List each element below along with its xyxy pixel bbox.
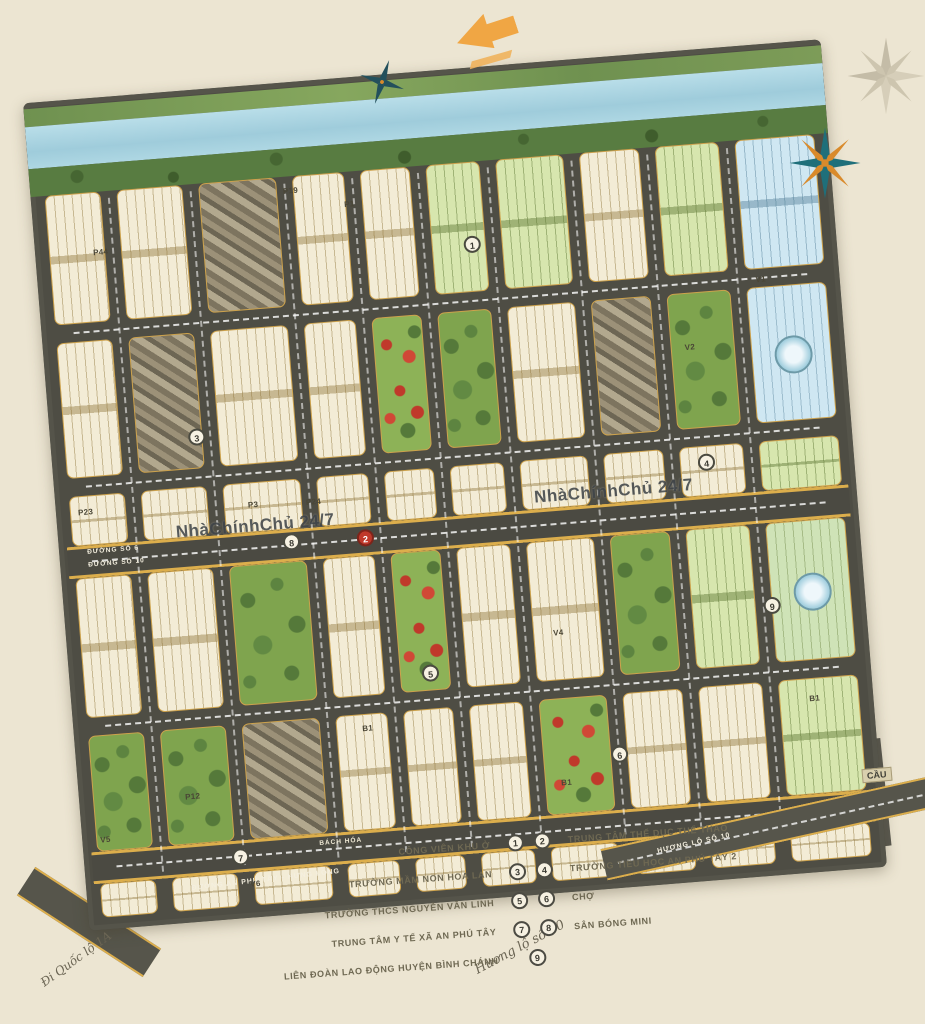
block-label: V5 xyxy=(100,835,111,845)
masterplan-map: ĐƯỜNG SỐ 6 ĐƯỜNG SỐ 10 ĐƯỜNG AN PHÚ TÂY … xyxy=(23,39,887,930)
legend-circle-4: 4 xyxy=(535,861,553,879)
legend-circle-6: 6 xyxy=(537,890,555,908)
map-block xyxy=(160,725,235,846)
map-block xyxy=(666,289,741,430)
block-label: B1 xyxy=(561,778,573,788)
block-label: V1 xyxy=(755,274,766,284)
map-block xyxy=(384,468,438,522)
legend-circle-2: 2 xyxy=(533,832,551,850)
legend-circles: 7 8 xyxy=(496,917,575,940)
block-label: P23 xyxy=(78,507,94,517)
compass-rose-icon xyxy=(788,126,862,200)
map-block xyxy=(758,435,842,491)
legend-circle-5: 5 xyxy=(511,892,529,910)
map-block xyxy=(495,154,573,289)
map-block xyxy=(229,560,318,706)
map-block xyxy=(88,732,153,852)
map-block xyxy=(579,148,649,282)
map-block xyxy=(507,302,586,443)
map-block xyxy=(610,531,681,675)
map-block xyxy=(198,177,286,313)
block-label: V4 xyxy=(553,628,564,638)
block-label: P3 xyxy=(248,500,259,510)
map-block xyxy=(698,682,771,803)
masterplan-page: { "watermark": { "text": "NhàChínhChủ 24… xyxy=(0,0,925,1024)
block-label: B1 xyxy=(809,693,821,703)
legend-circles: 1 2 xyxy=(489,830,568,853)
legend-circle-8: 8 xyxy=(540,919,558,937)
map-block xyxy=(655,142,729,277)
map-block xyxy=(622,688,691,808)
legend-circle-1: 1 xyxy=(506,834,524,852)
handwritten-quoc-lo-1a: Đi Quốc lộ 1A xyxy=(38,929,114,990)
map-block xyxy=(526,537,605,682)
map-block xyxy=(210,325,299,467)
map-block xyxy=(539,695,616,816)
block-label: P1 xyxy=(344,199,355,209)
map-block xyxy=(449,462,507,516)
legend-circle-3: 3 xyxy=(508,863,526,881)
block-label: P12 xyxy=(185,791,201,801)
block-label: P19 xyxy=(283,186,299,196)
map-block xyxy=(591,296,662,436)
map-block xyxy=(778,674,867,796)
legend-circles: 3 4 xyxy=(491,859,570,882)
map-block xyxy=(100,879,159,917)
bridge-label: CẦU xyxy=(861,767,892,784)
map-block xyxy=(116,185,192,320)
map-block xyxy=(403,707,462,827)
map-block xyxy=(128,332,205,473)
legend-circle-7: 7 xyxy=(513,920,531,938)
map-block xyxy=(241,718,328,840)
map-block xyxy=(685,525,760,670)
block-label: B1 xyxy=(362,723,374,733)
legend-circles: 5 6 xyxy=(494,888,573,911)
map-block xyxy=(44,191,110,325)
map-block xyxy=(765,517,856,663)
legend-circle-9: 9 xyxy=(528,948,546,966)
map-block xyxy=(469,701,532,821)
map-block xyxy=(147,568,224,713)
map-canvas: ĐƯỜNG SỐ 6 ĐƯỜNG SỐ 10 ĐƯỜNG AN PHÚ TÂY … xyxy=(23,39,887,930)
block-label: V2 xyxy=(684,342,695,352)
map-block xyxy=(69,493,129,547)
legend-circles: 9 xyxy=(498,946,577,969)
map-block xyxy=(746,282,837,424)
block-label: P44 xyxy=(93,247,109,257)
block-label: P24 xyxy=(306,497,322,507)
compass-rose-faded-icon xyxy=(846,36,925,116)
